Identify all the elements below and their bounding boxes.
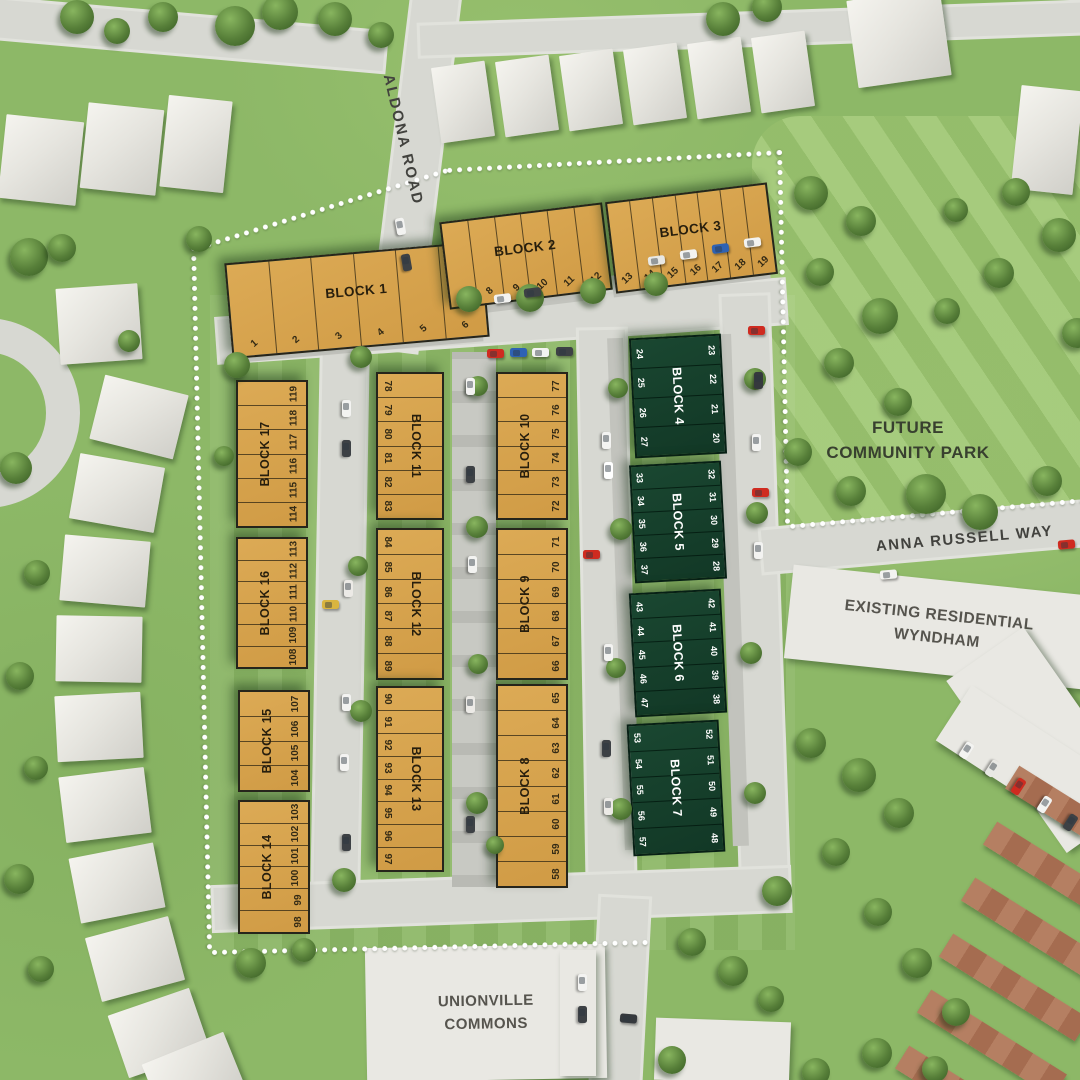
tree [580,278,606,304]
lot-number: 61 [551,793,562,804]
lot-number: 112 [288,563,299,579]
car [752,434,761,451]
tree [864,898,892,926]
lot-number: 68 [551,611,562,622]
lot-number: 92 [382,739,393,750]
lot-number: 52 [704,729,715,740]
lot-number: 69 [551,586,562,597]
lot-number: 46 [638,674,649,685]
existing-house [687,37,751,120]
car [556,347,573,356]
block-4-label: BLOCK 4 [670,367,687,425]
lot-91[interactable]: 91 [378,710,442,733]
lot-number: 65 [551,693,562,704]
lot-number: 28 [711,561,722,572]
lot-number: 90 [382,693,393,704]
lot-number: 3 [333,330,344,342]
tree [4,864,34,894]
tree [802,1058,830,1080]
lot-number: 26 [638,407,649,418]
lot-number: 109 [288,627,299,644]
existing-house [559,49,623,132]
lot-61[interactable]: 61 [498,786,566,811]
tree [922,1056,948,1080]
lot-number: 104 [290,770,301,787]
tree [486,836,504,854]
site-boundary-dash [191,246,212,950]
lot-number: 89 [382,660,393,671]
tree [984,258,1014,288]
lot-number: 24 [635,349,646,360]
lot-number: 44 [636,625,647,636]
car [1058,539,1076,549]
block-9-label: BLOCK 9 [518,575,532,633]
lot-number: 54 [633,759,644,770]
car [578,974,587,991]
tree [842,758,876,792]
lot-101[interactable]: 101 [240,845,308,867]
lot-118[interactable]: 118 [238,405,306,429]
lot-number: 56 [636,810,647,821]
lot-105[interactable]: 105 [240,741,308,766]
car [340,754,349,771]
car [752,488,769,497]
lot-number: 51 [705,755,716,766]
block-14-label: BLOCK 14 [260,834,274,899]
tree [348,556,368,576]
lot-83[interactable]: 83 [378,494,442,518]
lot-number: 6 [460,319,471,331]
existing-house [0,114,84,206]
lot-number: 41 [707,622,718,633]
tree [822,838,850,866]
existing-house [431,61,495,144]
block-8[interactable]: 6564636261605958BLOCK 8 [496,684,568,888]
lot-number: 21 [709,403,720,414]
lot-number: 108 [288,648,299,665]
lot-number: 27 [639,436,650,447]
block-11-label: BLOCK 11 [409,414,423,478]
block-6[interactable]: 43424441454046394738BLOCK 6 [629,589,727,718]
site-boundary-dash [447,150,782,173]
lot-number: 25 [636,378,647,389]
lot-71[interactable]: 71 [498,530,566,554]
tree [824,348,854,378]
lot-number: 114 [288,506,299,522]
lot-75[interactable]: 75 [498,421,566,445]
car [466,378,475,395]
lot-98[interactable]: 98 [240,910,308,932]
lot-97[interactable]: 97 [378,847,442,870]
lot-115[interactable]: 115 [238,478,306,502]
tree [906,474,946,514]
car [604,798,613,815]
existing-house [89,375,188,460]
lot-number: 91 [382,716,393,727]
lot-119[interactable]: 119 [238,382,306,405]
car [466,466,475,483]
existing-house [623,43,687,126]
lot-number: 42 [706,598,717,609]
lot-number: 55 [635,785,646,796]
block-15-label: BLOCK 15 [260,708,274,773]
car [583,550,600,559]
block-12[interactable]: 848586878889BLOCK 12 [376,528,444,680]
lot-number: 40 [709,646,720,657]
lot-number: 98 [293,916,304,927]
lot-number: 30 [709,515,720,526]
lot-65[interactable]: 65 [498,686,566,710]
lot-number: 43 [634,601,645,612]
lot-number: 31 [707,492,718,503]
car [754,542,763,559]
block-17[interactable]: 119118117116115114BLOCK 17 [236,380,308,528]
lot-69[interactable]: 69 [498,579,566,604]
lot-number: 58 [551,868,562,879]
tree [350,700,372,722]
block-13-label: BLOCK 13 [409,746,423,811]
lot-66[interactable]: 66 [498,653,566,678]
lot-number: 99 [293,894,304,905]
lot-109[interactable]: 109 [238,624,306,646]
block-9[interactable]: 717069686766BLOCK 9 [496,528,568,680]
car [532,348,549,357]
lot-number: 13 [620,271,636,287]
block-10[interactable]: 777675747372BLOCK 10 [496,372,568,520]
lot-number: 75 [551,428,562,439]
lot-number: 1 [248,338,259,350]
lot-number: 47 [639,698,650,709]
tree [10,238,48,276]
lot-number: 80 [382,428,393,439]
lot-number: 23 [706,345,717,356]
lot-number: 33 [634,473,645,484]
lot-89[interactable]: 89 [378,653,442,678]
lot-number: 97 [382,854,393,865]
tree [292,938,316,962]
car [602,740,611,757]
lot-number: 111 [289,584,300,600]
tree [610,798,632,820]
lot-68[interactable]: 68 [498,603,566,628]
lot-number: 118 [288,410,299,426]
block-16[interactable]: 113112111110109108BLOCK 16 [236,537,308,669]
block-8-label: BLOCK 8 [518,757,532,815]
lot-number: 32 [706,469,717,480]
lot-number: 106 [290,720,301,737]
lot-number: 49 [708,807,719,818]
tree [186,226,212,252]
lot-58[interactable]: 58 [498,861,566,886]
lot-number: 17 [710,260,726,276]
lot-number: 82 [382,477,393,488]
lot-number: 110 [288,606,299,622]
block-10-label: BLOCK 10 [518,413,532,478]
existing-house [55,283,142,365]
block-17-label: BLOCK 17 [258,421,272,486]
car [578,1006,587,1023]
tree [934,298,960,324]
existing-house [495,55,559,138]
lot-number: 59 [551,843,562,854]
block-4[interactable]: 2423252226212720BLOCK 4 [629,334,727,459]
lot-number: 11 [562,274,577,289]
car [880,569,898,579]
lot-103[interactable]: 103 [240,802,308,823]
lot-number: 72 [551,501,562,512]
lot-number: 63 [551,743,562,754]
lot-number: 45 [637,650,648,661]
block-7[interactable]: 53525451555056495748BLOCK 7 [627,720,726,857]
lot-96[interactable]: 96 [378,824,442,847]
tree [28,956,54,982]
car [342,400,351,417]
tree [944,198,968,222]
lot-number: 86 [382,586,393,597]
block-16-label: BLOCK 16 [258,570,272,635]
tree [706,2,740,36]
lot-number: 94 [382,785,393,796]
tree [332,868,356,892]
car [754,372,763,389]
tree [368,22,394,48]
tree [678,928,706,956]
lot-number: 107 [290,696,301,713]
lot-116[interactable]: 116 [238,454,306,478]
lot-number: 57 [638,836,649,847]
tree [0,452,32,484]
lot-number: 16 [688,262,704,278]
lot-row-57-48[interactable]: 5748 [634,824,723,854]
unionville-label-line2: COMMONS [438,1012,534,1036]
lot-number: 103 [290,804,301,821]
lot-number: 115 [288,482,299,498]
tree [836,476,866,506]
lot-number: 50 [707,781,718,792]
lot-number: 100 [290,870,301,887]
lot-number: 117 [288,434,299,450]
lot-number: 101 [290,848,301,865]
lot-number: 102 [290,826,301,843]
tree [746,502,768,524]
existing-house [159,95,232,193]
lot-number: 76 [551,404,562,415]
tree [794,176,828,210]
lot-110[interactable]: 110 [238,603,306,625]
lot-117[interactable]: 117 [238,429,306,453]
car [604,644,613,661]
car [604,462,613,479]
lot-64[interactable]: 64 [498,710,566,735]
tree [862,1038,892,1068]
existing-house [846,0,951,88]
tree [466,792,488,814]
lot-number: 67 [551,636,562,647]
tree [744,782,766,804]
lot-63[interactable]: 63 [498,735,566,760]
car [748,326,765,335]
lot-106[interactable]: 106 [240,716,308,741]
lot-number: 95 [382,808,393,819]
road-top [420,2,1080,55]
lot-78[interactable]: 78 [378,374,442,397]
tree [608,378,628,398]
lot-114[interactable]: 114 [238,502,306,526]
tree [644,272,668,296]
tree [318,2,352,36]
car [468,556,477,573]
lot-102[interactable]: 102 [240,823,308,845]
lot-number: 34 [636,496,647,507]
future-park-label-line1: FUTURE [808,416,1008,441]
lot-number: 77 [551,380,562,391]
tree [740,642,762,664]
lot-number: 85 [382,561,393,572]
lot-number: 64 [551,718,562,729]
lot-111[interactable]: 111 [238,581,306,603]
existing-house [85,916,185,1002]
lot-number: 87 [382,611,393,622]
car [602,432,611,449]
lot-60[interactable]: 60 [498,811,566,836]
lot-number: 39 [710,670,721,681]
tree [806,258,834,286]
lot-row-27-20[interactable]: 2720 [636,422,725,456]
lot-number: 2 [291,334,302,346]
existing-house [80,102,165,195]
tree [468,654,488,674]
tree [6,662,34,690]
lot-number: 79 [382,404,393,415]
car [466,696,475,713]
lot-number: 84 [382,536,393,547]
tree [1032,466,1062,496]
lot-number: 96 [382,831,393,842]
tree [846,206,876,236]
tree [1042,218,1076,252]
lot-62[interactable]: 62 [498,760,566,785]
tree [902,948,932,978]
tree [214,446,234,466]
lot-59[interactable]: 59 [498,836,566,861]
future-community-park-label: FUTURE COMMUNITY PARK [808,416,1008,465]
unionville-label-line1: UNIONVILLE [438,990,534,1014]
lot-number: 83 [382,501,393,512]
lot-107[interactable]: 107 [240,692,308,716]
block-6-label: BLOCK 6 [670,624,687,682]
lot-104[interactable]: 104 [240,765,308,790]
tree [942,998,970,1026]
existing-house [69,453,165,533]
lot-number: 15 [665,265,681,281]
lot-row-47-38[interactable]: 4738 [636,686,725,715]
tree [350,346,372,368]
tree [456,286,482,312]
tree [224,352,250,378]
lot-number: 22 [708,374,719,385]
lot-72[interactable]: 72 [498,494,566,518]
block-5[interactable]: 33323431353036293728BLOCK 5 [629,461,727,584]
lot-number: 20 [711,433,722,444]
lot-number: 73 [551,477,562,488]
tree [606,658,626,678]
car [342,694,351,711]
lot-number: 48 [709,832,720,843]
lot-77[interactable]: 77 [498,374,566,397]
lot-number: 105 [290,745,301,762]
lot-number: 53 [632,733,643,744]
tree [884,388,912,416]
lot-90[interactable]: 90 [378,688,442,710]
tree [962,494,998,530]
block-7-label: BLOCK 7 [668,759,685,817]
tree [610,518,632,540]
lot-number: 36 [638,542,649,553]
lot-row-37-28[interactable]: 3728 [636,554,725,582]
tree [60,0,94,34]
future-park-label-line2: COMMUNITY PARK [808,441,1008,466]
lot-67[interactable]: 67 [498,628,566,653]
tree [215,6,255,46]
lot-number: 29 [710,538,721,549]
lot-number: 62 [551,768,562,779]
lot-number: 66 [551,660,562,671]
tree [658,1046,686,1074]
lot-108[interactable]: 108 [238,646,306,668]
tree [796,728,826,758]
lot-99[interactable]: 99 [240,888,308,910]
tree [24,560,50,586]
lot-number: 35 [637,519,648,530]
lot-number: 70 [551,561,562,572]
lot-number: 116 [288,458,299,474]
tree [758,986,784,1012]
lot-100[interactable]: 100 [240,866,308,888]
lot-112[interactable]: 112 [238,560,306,582]
tree [466,516,488,538]
lot-number: 81 [382,453,393,464]
tree [148,2,178,32]
tree [718,956,748,986]
car [322,600,339,609]
lot-113[interactable]: 113 [238,539,306,560]
car [620,1013,638,1023]
tree [104,18,130,44]
site-plan: EXISTING RESIDENTIAL WYNDHAM UNIONVILLE … [0,0,1080,1080]
existing-house [751,31,815,114]
block-13[interactable]: 9091929394959697BLOCK 13 [376,686,444,872]
lot-73[interactable]: 73 [498,470,566,494]
lot-number: 88 [382,636,393,647]
car [466,816,475,833]
car [342,440,351,457]
car [487,349,504,358]
lot-number: 60 [551,818,562,829]
lot-74[interactable]: 74 [498,446,566,470]
lot-76[interactable]: 76 [498,397,566,421]
lot-84[interactable]: 84 [378,530,442,554]
existing-house [59,534,150,607]
car [510,348,527,357]
lot-number: 4 [375,327,386,339]
block-14[interactable]: 1031021011009998BLOCK 14 [238,800,310,934]
tree [118,330,140,352]
lot-70[interactable]: 70 [498,554,566,579]
block-11[interactable]: 787980818283BLOCK 11 [376,372,444,520]
block-15[interactable]: 107106105104BLOCK 15 [238,690,310,792]
lot-number: 71 [551,536,562,547]
tree [236,948,266,978]
